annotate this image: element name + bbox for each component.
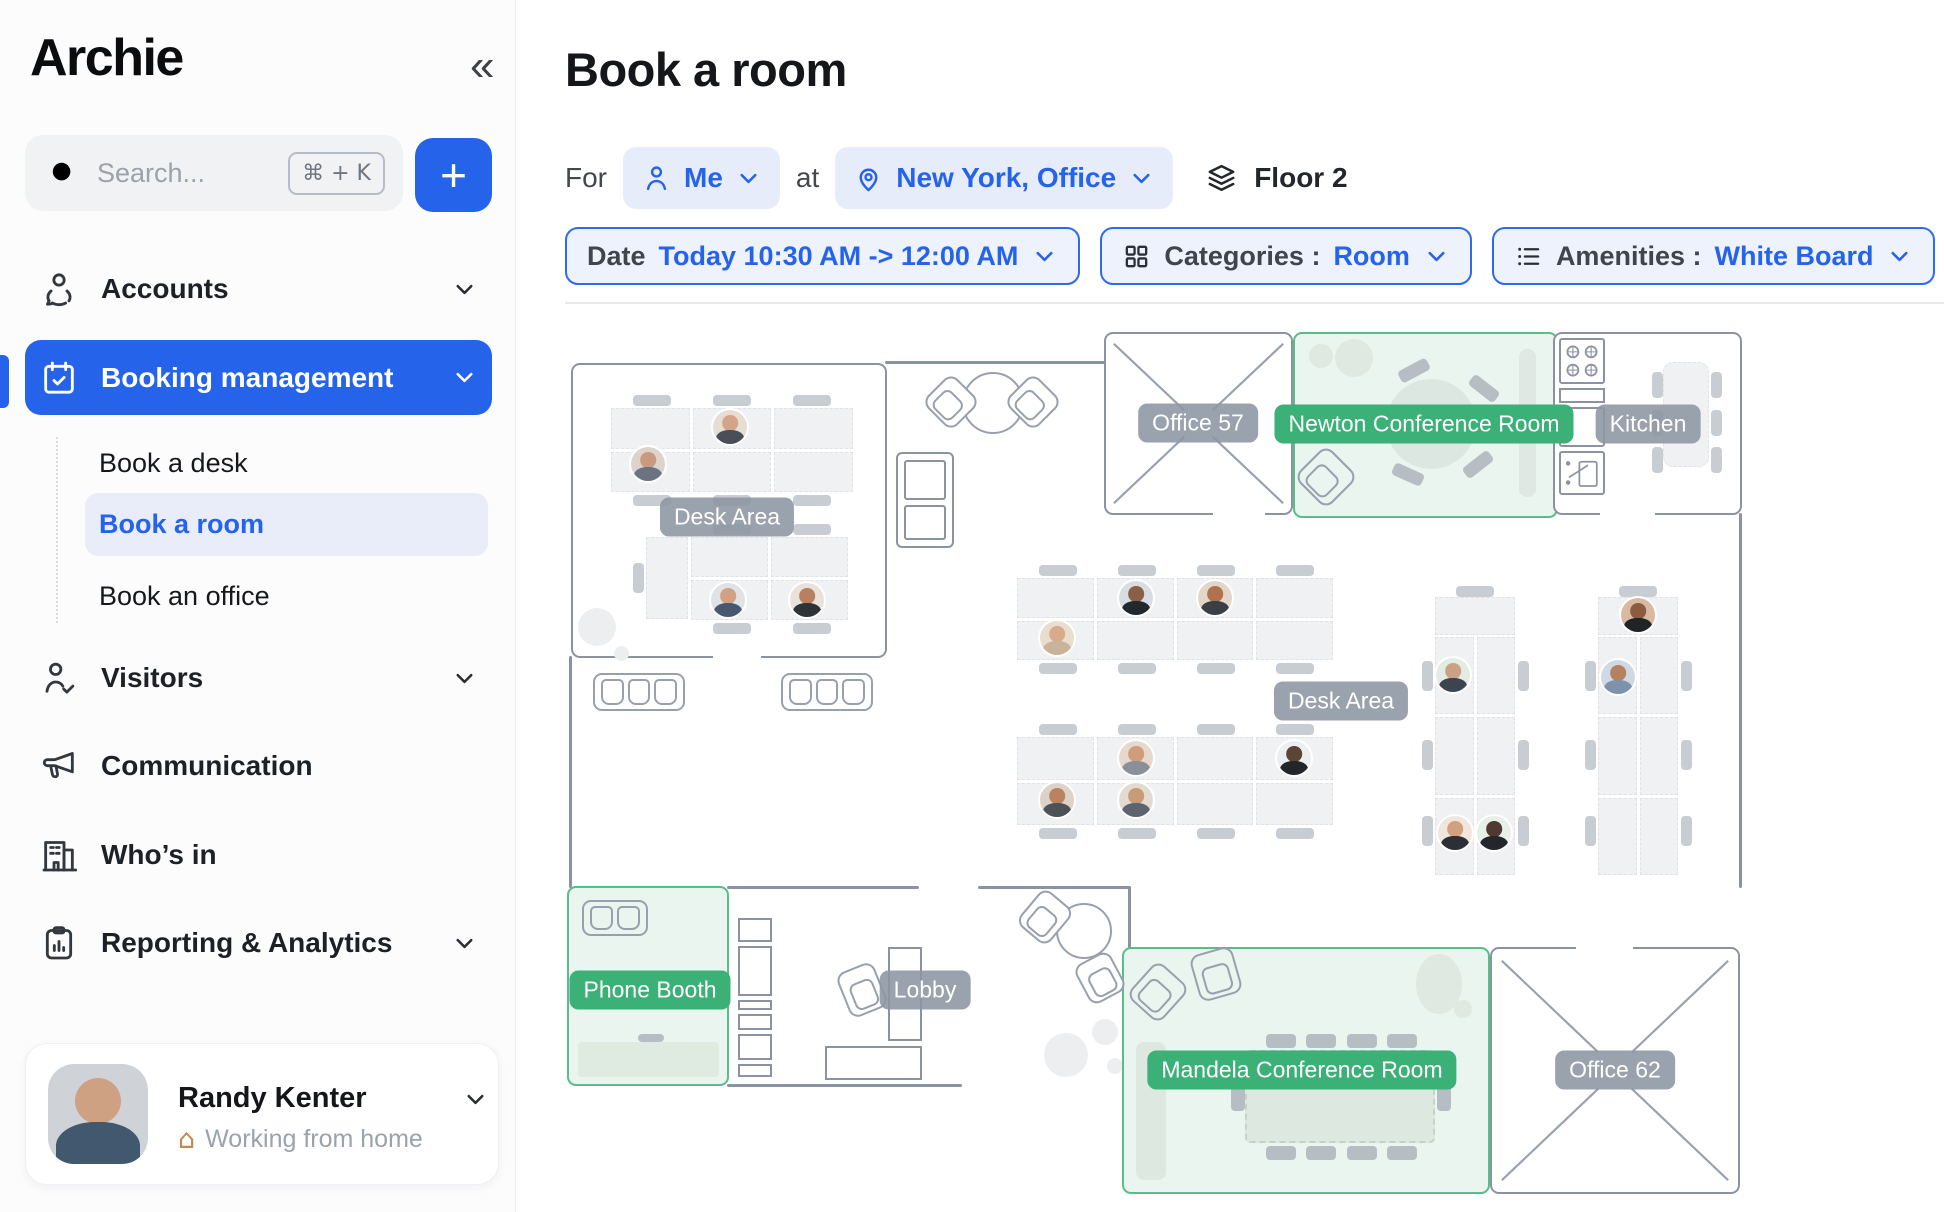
desk[interactable] [1640,798,1679,875]
person-selector[interactable]: Me [623,147,780,209]
sofa [593,673,685,711]
desk[interactable] [1598,798,1637,875]
chair [1039,663,1077,674]
desk-avatar [631,447,665,481]
cabinet-drawer [904,505,946,540]
chair [1197,724,1235,735]
desk-avatar [1601,660,1635,694]
chair [793,524,831,535]
amenities-value: White Board [1714,241,1873,272]
desk[interactable] [774,408,853,449]
desk[interactable] [1017,578,1094,618]
chair [1585,740,1596,770]
location-selector[interactable]: New York, Office [835,147,1173,209]
sidebar: Archie Search... ⌘ + K + Accounts Bookin… [0,0,516,1212]
shelf [738,1034,772,1060]
location-value: New York, Office [896,162,1116,194]
sidebar-item-label: Who’s in [101,839,217,871]
door-gap [1213,507,1265,517]
desk[interactable] [691,537,768,577]
chair [1039,828,1077,839]
desk[interactable] [1177,737,1254,780]
room-label: Kitchen [1596,405,1701,444]
chair [1039,565,1077,576]
categories-value: Room [1333,241,1410,272]
add-button[interactable]: + [415,138,492,212]
chevron-down-icon [1031,243,1058,270]
shelf [738,1014,772,1030]
desk[interactable] [771,537,848,577]
search-placeholder: Search... [97,158,274,189]
door-gap [1576,942,1633,952]
desk[interactable] [1435,717,1474,794]
desk[interactable] [1640,637,1679,714]
sidebar-item-communication[interactable]: Communication [25,734,492,798]
cabinet-drawer [904,460,946,500]
chair [1619,586,1657,597]
date-filter-button[interactable]: Date Today 10:30 AM -> 12:00 AM [565,227,1080,285]
chair [1711,372,1722,398]
chair [1518,816,1529,846]
avatar [48,1064,148,1164]
desk[interactable] [646,537,688,619]
collapse-sidebar-icon[interactable]: « [470,44,494,88]
location-pin-icon [853,163,884,194]
chair [1118,565,1156,576]
chair [1197,828,1235,839]
chair [1276,565,1314,576]
chair [1118,828,1156,839]
chair [1306,1146,1336,1160]
desk-avatar [1198,581,1232,615]
decor-circle [614,646,629,661]
stove [1559,338,1605,384]
chair [1585,816,1596,846]
wall [885,361,1106,364]
chair [1681,661,1692,691]
sidebar-item-label: Booking management [101,362,393,394]
categories-label: Categories : [1164,241,1320,272]
wall [569,656,572,888]
desk-avatar [1438,816,1472,850]
decor-circle [1092,1019,1118,1045]
chair [1711,410,1722,436]
chair [1422,661,1433,691]
chair [713,395,751,406]
booking-context-row: For Me at New York, Office Floor 2 [565,146,1348,210]
desk-avatar [790,583,824,617]
date-value: Today 10:30 AM -> 12:00 AM [659,241,1019,272]
chair [1276,724,1314,735]
content-divider [565,302,1944,304]
clipboard-chart-icon [39,923,79,963]
chair [1118,724,1156,735]
chair [793,495,831,506]
chair [713,623,751,634]
wall [978,886,1130,889]
kitchen-counter [1559,388,1605,403]
desk-avatar [1119,783,1153,817]
chair [638,1034,664,1042]
desk[interactable] [1256,578,1333,618]
amenities-filter-button[interactable]: Amenities : White Board [1492,227,1936,285]
chair [1681,740,1692,770]
shelf [738,1000,772,1010]
wall [727,886,919,889]
door-gap [713,652,761,662]
chair [1422,816,1433,846]
chair [1387,1146,1417,1160]
desk-avatar [711,583,745,617]
room-label: Newton Conference Room [1274,405,1573,444]
chevron-down-icon [735,165,762,192]
desk-avatar [1040,621,1074,655]
decor-circle [578,608,616,646]
decor-circle [1107,1058,1123,1074]
sofa [781,673,873,711]
floor-value[interactable]: Floor 2 [1254,162,1347,194]
desk[interactable] [1477,717,1516,794]
sidebar-item-label: Reporting & Analytics [101,927,392,959]
sidebar-item-booking-management[interactable]: Booking management [25,340,492,415]
decor-circle [1335,339,1373,377]
search-shortcut: ⌘ + K [288,152,385,195]
chevron-down-icon [451,364,478,391]
chair [1197,663,1235,674]
person-value: Me [684,162,723,194]
chevron-down-icon[interactable] [462,1086,489,1113]
sofa [582,900,648,936]
sidebar-item-book-an-office[interactable]: Book an office [85,565,488,628]
chair [793,395,831,406]
desk[interactable] [1477,637,1516,714]
wall [1128,886,1131,949]
amenities-label: Amenities : [1556,241,1702,272]
for-label: For [565,162,607,194]
shelf [738,918,772,942]
room-label: Office 62 [1555,1051,1675,1090]
person-icon [641,163,672,194]
user-status-text: Working from home [205,1125,423,1154]
chair [1266,1146,1296,1160]
sidebar-item-book-a-room[interactable]: Book a room [85,493,488,556]
user-name: Randy Kenter [178,1082,367,1115]
chair [1652,447,1663,473]
visitor-icon [39,658,79,698]
desk[interactable] [1177,621,1254,661]
sidebar-item-label: Accounts [101,273,229,305]
sidebar-item-reporting-analytics[interactable]: Reporting & Analytics [25,911,492,975]
desk[interactable] [1017,737,1094,780]
subtree-line [56,437,58,623]
desk[interactable] [1640,717,1679,794]
floor-layers-icon [1205,162,1238,195]
decor-circle [1044,1033,1088,1077]
room-label: Office 57 [1138,404,1258,443]
chevron-down-icon [451,930,478,957]
chair [1347,1146,1377,1160]
chevron-down-icon [1886,243,1913,270]
chair [1347,1034,1377,1048]
sidebar-item-label: Communication [101,750,313,782]
chevron-down-icon [1423,243,1450,270]
sidebar-item-label: Visitors [101,662,203,694]
room-label: Phone Booth [569,971,730,1010]
chair [1422,740,1433,770]
area-label: Desk Area [1274,682,1408,721]
chair [1456,586,1494,597]
search-input[interactable]: Search... ⌘ + K [25,135,403,211]
wall [727,1084,962,1087]
grid-icon [1122,242,1151,271]
desk-avatar [1119,581,1153,615]
chair [1681,816,1692,846]
desk[interactable] [1177,783,1254,826]
sidebar-item-book-a-desk[interactable]: Book a desk [85,432,488,495]
chair [1652,372,1663,398]
user-status: ⌂ Working from home [178,1124,423,1155]
sidebar-item-label: Book a room [99,509,264,540]
chevron-down-icon [1128,165,1155,192]
room-label: Lobby [880,971,971,1010]
chair [1266,1034,1296,1048]
search-icon [43,156,83,190]
room-label: Mandela Conference Room [1147,1051,1456,1090]
desk[interactable] [1256,783,1333,826]
desk-avatar [1040,783,1074,817]
chevron-down-icon [451,276,478,303]
desk-avatar [1277,741,1311,775]
desk[interactable] [774,452,853,493]
megaphone-icon [39,746,79,786]
calendar-check-icon [39,358,79,398]
chair [633,563,644,593]
reception-desk [825,1046,922,1080]
desk-avatar [1621,598,1655,632]
desk-avatar [1477,816,1511,850]
chair [793,623,831,634]
chair [1711,447,1722,473]
shelf [738,946,772,996]
accounts-icon [39,269,79,309]
chair [1197,565,1235,576]
chair [1039,724,1077,735]
active-indicator [0,355,9,408]
desk-avatar [713,410,747,444]
desk[interactable] [1256,621,1333,661]
area-label: Desk Area [660,498,794,537]
date-label: Date [587,241,646,272]
chair [633,395,671,406]
user-card[interactable]: Randy Kenter ⌂ Working from home [25,1043,499,1185]
sidebar-item-visitors[interactable]: Visitors [25,646,492,710]
chair [1118,663,1156,674]
sidebar-item-accounts[interactable]: Accounts [25,257,492,321]
decor-circle [1454,1000,1472,1018]
chair [1276,828,1314,839]
rug [578,1042,719,1077]
desk[interactable] [611,408,690,449]
chair [1585,661,1596,691]
decor-circle [1309,344,1333,368]
chair [1518,661,1529,691]
desk[interactable] [1097,621,1174,661]
page-title: Book a room [565,42,847,97]
chair [1387,1034,1417,1048]
chair [1306,1034,1336,1048]
chair [1276,663,1314,674]
desk[interactable] [1598,717,1637,794]
sidebar-item-label: Book an office [99,581,270,612]
sink [1559,451,1605,495]
desk[interactable] [1435,597,1515,635]
wall [1739,513,1742,888]
desk-avatar [1436,658,1470,692]
filter-row: Date Today 10:30 AM -> 12:00 AM Categori… [565,226,1935,286]
at-label: at [796,162,819,194]
list-icon [1514,242,1543,271]
sidebar-item-label: Book a desk [99,448,248,479]
door-gap [1600,507,1655,517]
categories-filter-button[interactable]: Categories : Room [1100,227,1472,285]
desk[interactable] [693,452,772,493]
desk-avatar [1119,741,1153,775]
app-logo: Archie [30,28,183,88]
chair [1518,740,1529,770]
shelf [738,1064,772,1077]
chevron-down-icon [451,665,478,692]
building-icon [39,835,79,875]
house-icon: ⌂ [178,1124,195,1155]
sidebar-item-whos-in[interactable]: Who’s in [25,823,492,887]
